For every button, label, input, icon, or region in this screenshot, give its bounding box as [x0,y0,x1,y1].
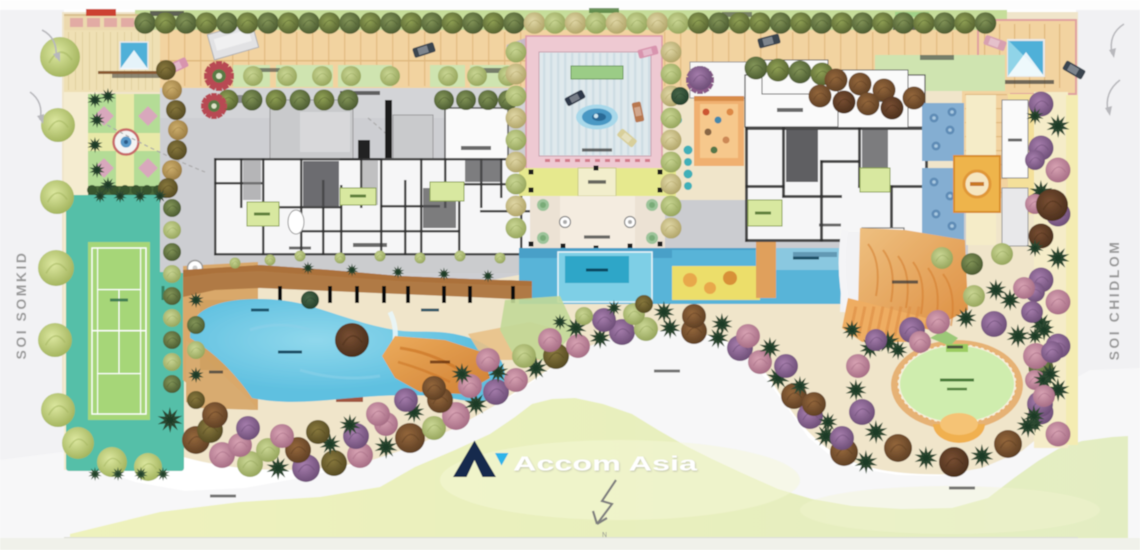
svg-text:Accom Asia: Accom Asia [513,453,698,476]
svg-text:N: N [602,532,607,539]
svg-text:SOI SOMKID: SOI SOMKID [13,250,29,359]
svg-text:SOI CHIDLOM: SOI CHIDLOM [1106,240,1122,361]
